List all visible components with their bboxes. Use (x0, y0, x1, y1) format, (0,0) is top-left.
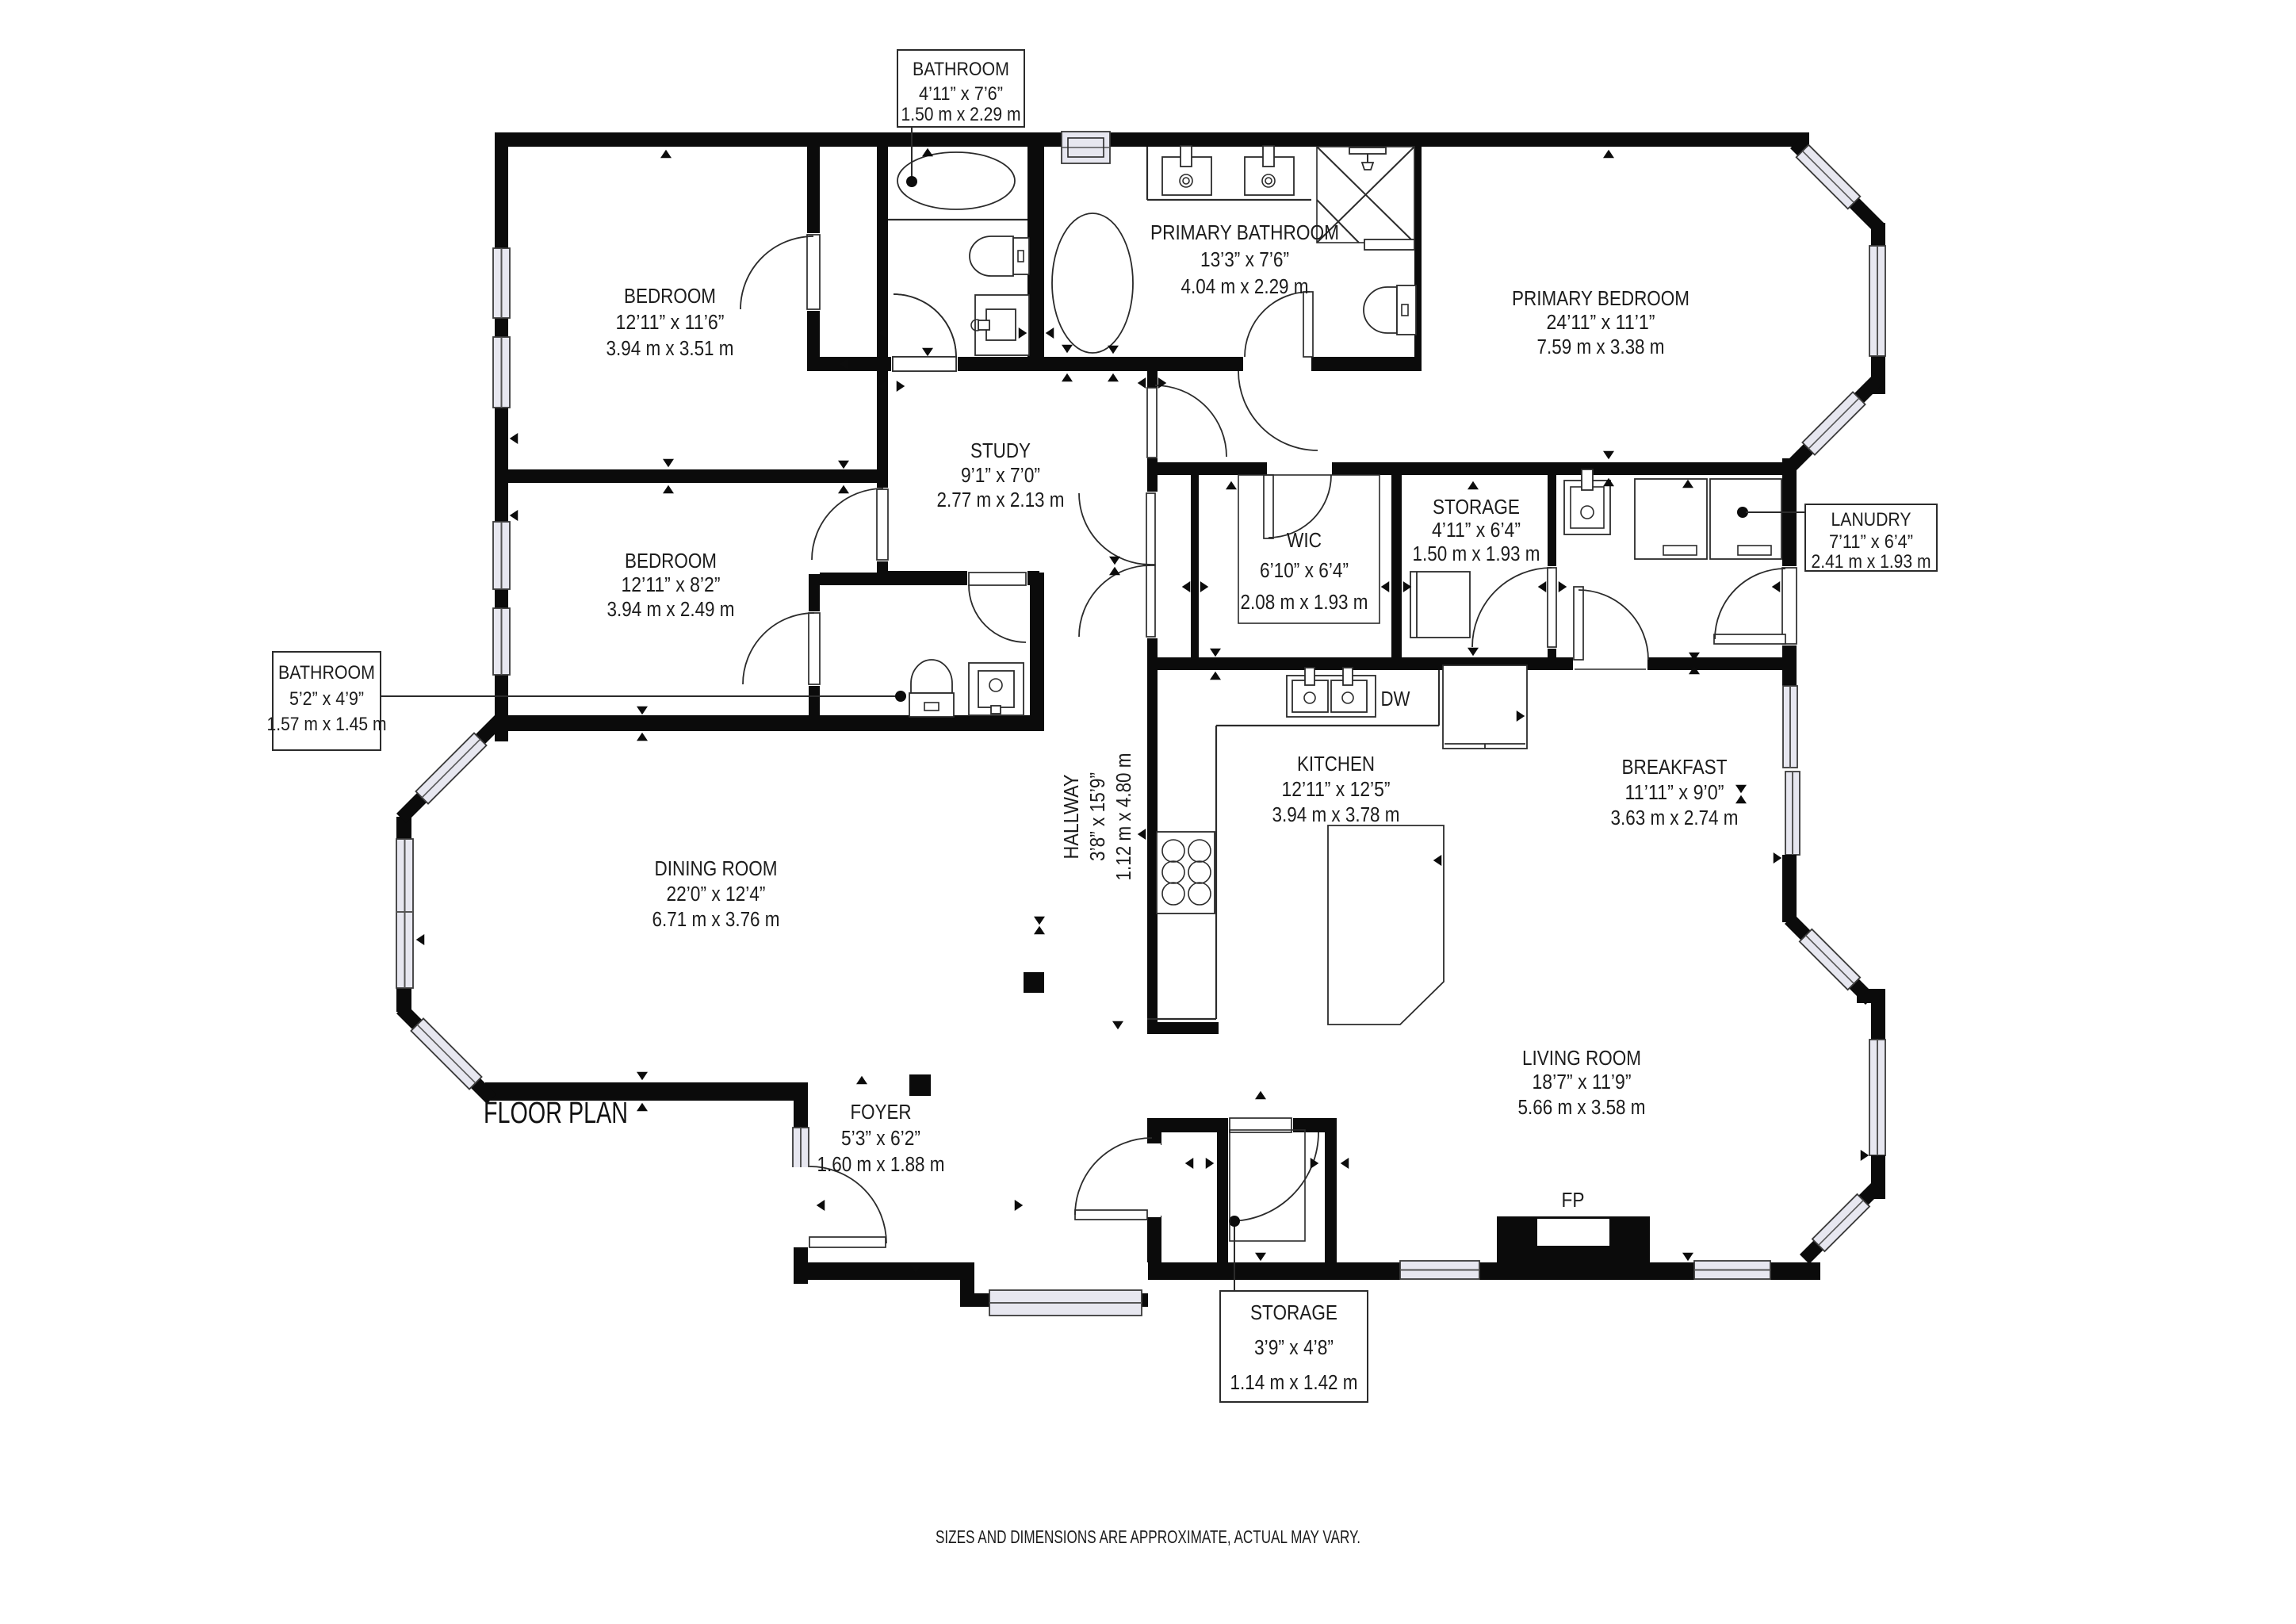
svg-text:24’11” x 11’1”: 24’11” x 11’1” (1547, 312, 1655, 334)
svg-text:6’10” x 6’4”: 6’10” x 6’4” (1260, 560, 1349, 582)
svg-text:3’9” x 4’8”: 3’9” x 4’8” (1254, 1337, 1334, 1359)
svg-text:11’11” x 9’0”: 11’11” x 9’0” (1625, 782, 1724, 804)
svg-text:2.41 m x 1.93 m: 2.41 m x 1.93 m (1812, 551, 1931, 573)
svg-text:BATHROOM: BATHROOM (278, 662, 375, 684)
svg-text:1.60 m x 1.88 m: 1.60 m x 1.88 m (817, 1154, 945, 1176)
svg-text:4’11” x 7’6”: 4’11” x 7’6” (919, 83, 1003, 105)
svg-text:3.94 m x 3.51 m: 3.94 m x 3.51 m (607, 338, 734, 360)
svg-text:12’11” x 12’5”: 12’11” x 12’5” (1282, 779, 1391, 801)
svg-text:2.77 m x 2.13 m: 2.77 m x 2.13 m (937, 489, 1065, 511)
svg-text:5’2” x 4’9”: 5’2” x 4’9” (289, 688, 364, 710)
svg-text:3’8” x 15’9”: 3’8” x 15’9” (1087, 772, 1109, 861)
svg-text:5’3” x 6’2”: 5’3” x 6’2” (841, 1128, 920, 1150)
svg-text:WIC: WIC (1287, 530, 1322, 552)
svg-text:STUDY: STUDY (970, 440, 1031, 462)
svg-text:BEDROOM: BEDROOM (624, 285, 716, 308)
svg-text:DINING ROOM: DINING ROOM (655, 858, 778, 880)
svg-text:13’3” x 7’6”: 13’3” x 7’6” (1200, 249, 1289, 271)
svg-text:1.14 m x 1.42 m: 1.14 m x 1.42 m (1230, 1372, 1358, 1394)
svg-text:4’11” x 6’4”: 4’11” x 6’4” (1432, 519, 1521, 542)
svg-text:3.94 m x 2.49 m: 3.94 m x 2.49 m (607, 599, 735, 621)
svg-text:12’11” x 8’2”: 12’11” x 8’2” (622, 574, 721, 596)
svg-text:2.08 m x 1.93 m: 2.08 m x 1.93 m (1241, 592, 1368, 614)
svg-text:22’0” x 12’4”: 22’0” x 12’4” (667, 883, 766, 906)
svg-text:4.04 m x 2.29 m: 4.04 m x 2.29 m (1181, 276, 1309, 298)
svg-text:1.57 m x 1.45 m: 1.57 m x 1.45 m (267, 714, 387, 735)
svg-text:FLOOR PLAN: FLOOR PLAN (484, 1097, 628, 1130)
svg-text:HALLWAY: HALLWAY (1061, 775, 1083, 860)
svg-text:PRIMARY BATHROOM: PRIMARY BATHROOM (1150, 222, 1339, 244)
svg-text:KITCHEN: KITCHEN (1297, 753, 1375, 776)
svg-text:3.63 m x 2.74 m: 3.63 m x 2.74 m (1611, 807, 1739, 829)
svg-text:STORAGE: STORAGE (1433, 496, 1520, 519)
svg-text:1.50 m x 2.29 m: 1.50 m x 2.29 m (901, 104, 1021, 125)
svg-text:3.94 m x 3.78 m: 3.94 m x 3.78 m (1272, 804, 1400, 826)
svg-text:BREAKFAST: BREAKFAST (1622, 756, 1728, 779)
svg-text:FP: FP (1562, 1189, 1585, 1212)
svg-text:5.66 m x 3.58 m: 5.66 m x 3.58 m (1518, 1097, 1646, 1119)
svg-text:9’1” x 7’0”: 9’1” x 7’0” (961, 465, 1040, 487)
svg-text:1.12 m x 4.80 m: 1.12 m x 4.80 m (1113, 753, 1135, 881)
svg-text:BATHROOM: BATHROOM (913, 59, 1009, 80)
svg-text:12’11” x 11’6”: 12’11” x 11’6” (616, 312, 725, 334)
svg-text:6.71 m x 3.76 m: 6.71 m x 3.76 m (652, 909, 780, 931)
svg-text:18’7” x 11’9”: 18’7” x 11’9” (1533, 1071, 1632, 1094)
svg-text:BEDROOM: BEDROOM (625, 550, 717, 573)
svg-text:DW: DW (1381, 688, 1410, 710)
svg-text:7’11” x 6’4”: 7’11” x 6’4” (1829, 531, 1913, 553)
svg-text:1.50 m x 1.93 m: 1.50 m x 1.93 m (1413, 543, 1540, 565)
svg-text:FOYER: FOYER (851, 1101, 912, 1124)
svg-text:7.59 m x 3.38 m: 7.59 m x 3.38 m (1537, 336, 1665, 358)
svg-text:LIVING ROOM: LIVING ROOM (1522, 1048, 1641, 1070)
svg-text:PRIMARY BEDROOM: PRIMARY BEDROOM (1512, 288, 1689, 310)
svg-text:STORAGE: STORAGE (1250, 1302, 1337, 1324)
svg-text:LANUDRY: LANUDRY (1831, 509, 1911, 530)
svg-text:SIZES AND DIMENSIONS ARE APPRO: SIZES AND DIMENSIONS ARE APPROXIMATE, AC… (936, 1526, 1360, 1547)
